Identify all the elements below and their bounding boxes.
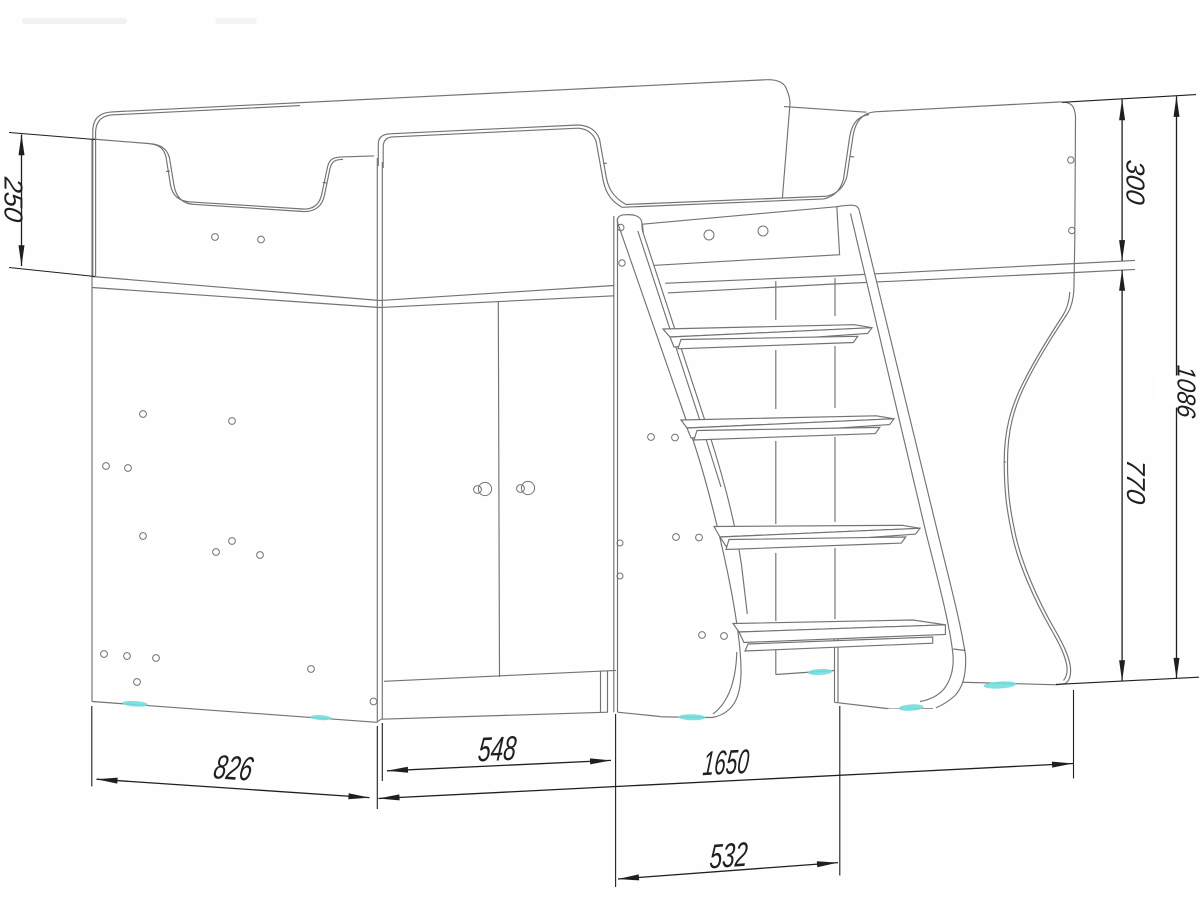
- svg-text:1650: 1650: [701, 743, 750, 783]
- svg-text:250: 250: [0, 175, 29, 225]
- svg-text:770: 770: [1121, 458, 1151, 507]
- svg-text:548: 548: [476, 730, 517, 770]
- svg-text:300: 300: [1121, 158, 1151, 207]
- svg-text:1086: 1086: [1172, 364, 1200, 421]
- svg-text:826: 826: [211, 749, 257, 789]
- svg-text:532: 532: [708, 836, 748, 877]
